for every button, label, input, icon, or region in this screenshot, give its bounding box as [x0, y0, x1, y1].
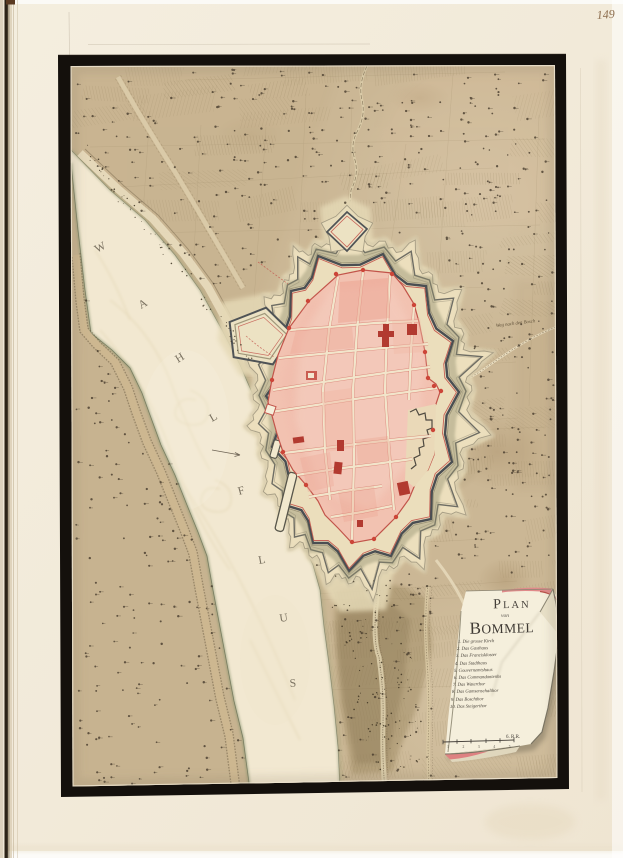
svg-text:von: von: [501, 613, 509, 619]
svg-text:9. Das Boschthor: 9. Das Boschthor: [451, 697, 484, 703]
svg-text:1 2 3 4 5: 1 2 3 4 5: [447, 744, 517, 749]
svg-text:149: 149: [596, 7, 615, 22]
svg-text:4. Das Stadthaus: 4. Das Stadthaus: [455, 661, 487, 667]
svg-text:10. Das Steigerthor: 10. Das Steigerthor: [450, 704, 487, 710]
svg-text:5. Gouvernemtshaus: 5. Gouvernemtshaus: [454, 668, 493, 674]
svg-text:2. Das Gasthaus: 2. Das Gasthaus: [457, 646, 488, 652]
svg-text:6. R.R.: 6. R.R.: [506, 735, 520, 740]
svg-text:PLAN: PLAN: [493, 597, 531, 613]
svg-text:S: S: [289, 677, 296, 690]
svg-text:BOMMEL: BOMMEL: [469, 617, 534, 638]
svg-text:1. Die grosse Kirch: 1. Die grosse Kirch: [458, 639, 495, 645]
svg-text:3. Das Franciskloster: 3. Das Franciskloster: [456, 653, 497, 659]
svg-text:7. Das Waterthor: 7. Das Waterthor: [453, 682, 486, 688]
